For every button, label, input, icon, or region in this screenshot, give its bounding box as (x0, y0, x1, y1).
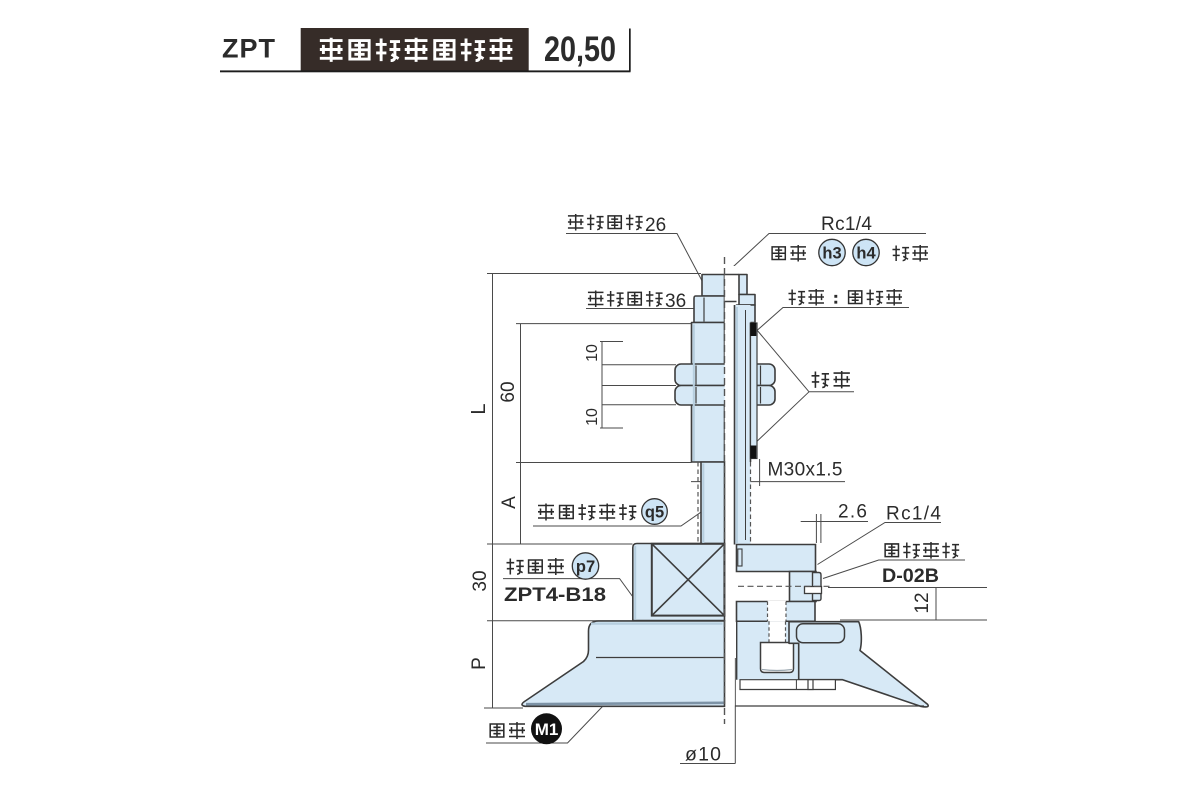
svg-text:36: 36 (665, 291, 686, 312)
svg-text:Rc1/4: Rc1/4 (821, 214, 872, 235)
svg-text:h4: h4 (856, 245, 876, 263)
svg-text:p7: p7 (576, 558, 595, 576)
svg-text:30: 30 (470, 570, 491, 591)
svg-text:10: 10 (584, 408, 601, 426)
svg-text:D-02B: D-02B (882, 565, 939, 587)
svg-text:q5: q5 (645, 504, 664, 522)
svg-text:M30x1.5: M30x1.5 (768, 460, 843, 481)
svg-text:A: A (499, 496, 520, 509)
svg-text:2.6: 2.6 (838, 502, 867, 523)
svg-text:ZPT4-B18: ZPT4-B18 (504, 584, 606, 606)
svg-text:h3: h3 (822, 245, 841, 263)
svg-text:Rc1/4: Rc1/4 (886, 504, 941, 525)
svg-text:60: 60 (498, 381, 519, 402)
svg-text:12: 12 (912, 592, 933, 613)
svg-text:10: 10 (584, 344, 601, 362)
svg-text:L: L (468, 403, 490, 414)
svg-text:ø10: ø10 (685, 744, 721, 766)
svg-text:20,50: 20,50 (544, 30, 616, 69)
svg-text:26: 26 (645, 215, 666, 236)
svg-text:ZPT: ZPT (222, 34, 276, 64)
svg-text:P: P (469, 657, 490, 670)
svg-text:M1: M1 (535, 720, 559, 739)
